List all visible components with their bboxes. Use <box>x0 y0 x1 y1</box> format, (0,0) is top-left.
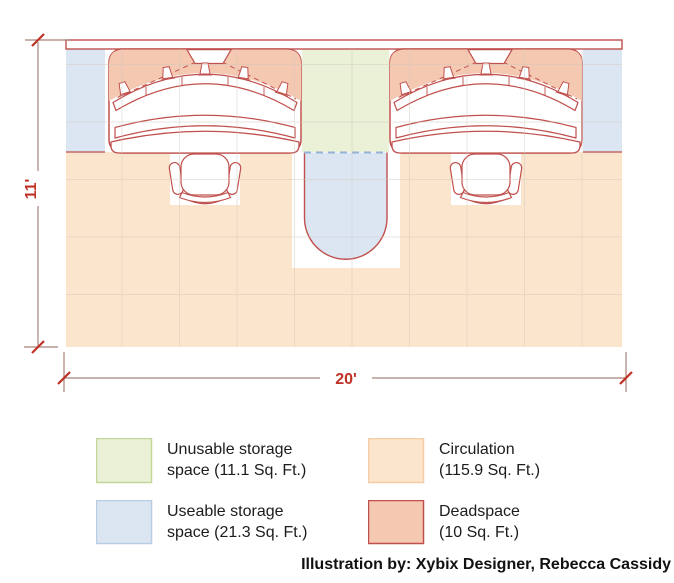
height-dimension-label: 11' <box>23 179 40 200</box>
attribution-text: Illustration by: Xybix Designer, Rebecca… <box>301 556 671 574</box>
circulation-swatch <box>368 438 425 484</box>
legend-label-line2: space (11.1 Sq. Ft.) <box>167 460 306 481</box>
legend-label: Unusable storage space (11.1 Sq. Ft.) <box>167 439 306 481</box>
swatch-rect <box>369 439 424 483</box>
legend-label-line1: Unusable storage <box>167 439 306 460</box>
floor-plan-illustration: 11' 20' Unusable storage space (11.1 Sq.… <box>0 0 674 583</box>
legend-label: Deadspace (10 Sq. Ft.) <box>439 501 520 543</box>
legend-item-deadspace: Deadspace (10 Sq. Ft.) <box>368 500 520 546</box>
floor-plan: 11' 20' <box>0 0 674 410</box>
swatch-rect <box>97 501 152 544</box>
legend-item-useable-storage: Useable storage space (21.3 Sq. Ft.) <box>96 500 308 546</box>
legend-label-line2: space (21.3 Sq. Ft.) <box>167 522 308 543</box>
useable-storage-center <box>305 153 388 260</box>
legend-label-line2: (10 Sq. Ft.) <box>439 522 520 543</box>
legend-item-unusable-storage: Unusable storage space (11.1 Sq. Ft.) <box>96 438 306 484</box>
legend-label-line1: Circulation <box>439 439 540 460</box>
width-dimension-label: 20' <box>335 371 357 388</box>
useable-storage-swatch <box>96 500 153 546</box>
legend-item-circulation: Circulation (115.9 Sq. Ft.) <box>368 438 540 484</box>
legend-label-line1: Deadspace <box>439 501 520 522</box>
deadspace-swatch <box>368 500 425 546</box>
legend-label: Circulation (115.9 Sq. Ft.) <box>439 439 540 481</box>
legend-label-line2: (115.9 Sq. Ft.) <box>439 460 540 481</box>
swatch-rect <box>369 501 424 544</box>
swatch-rect <box>97 439 152 483</box>
top-wall <box>66 40 622 49</box>
unusable-storage-swatch <box>96 438 153 484</box>
legend-label: Useable storage space (21.3 Sq. Ft.) <box>167 501 308 543</box>
legend-label-line1: Useable storage <box>167 501 308 522</box>
